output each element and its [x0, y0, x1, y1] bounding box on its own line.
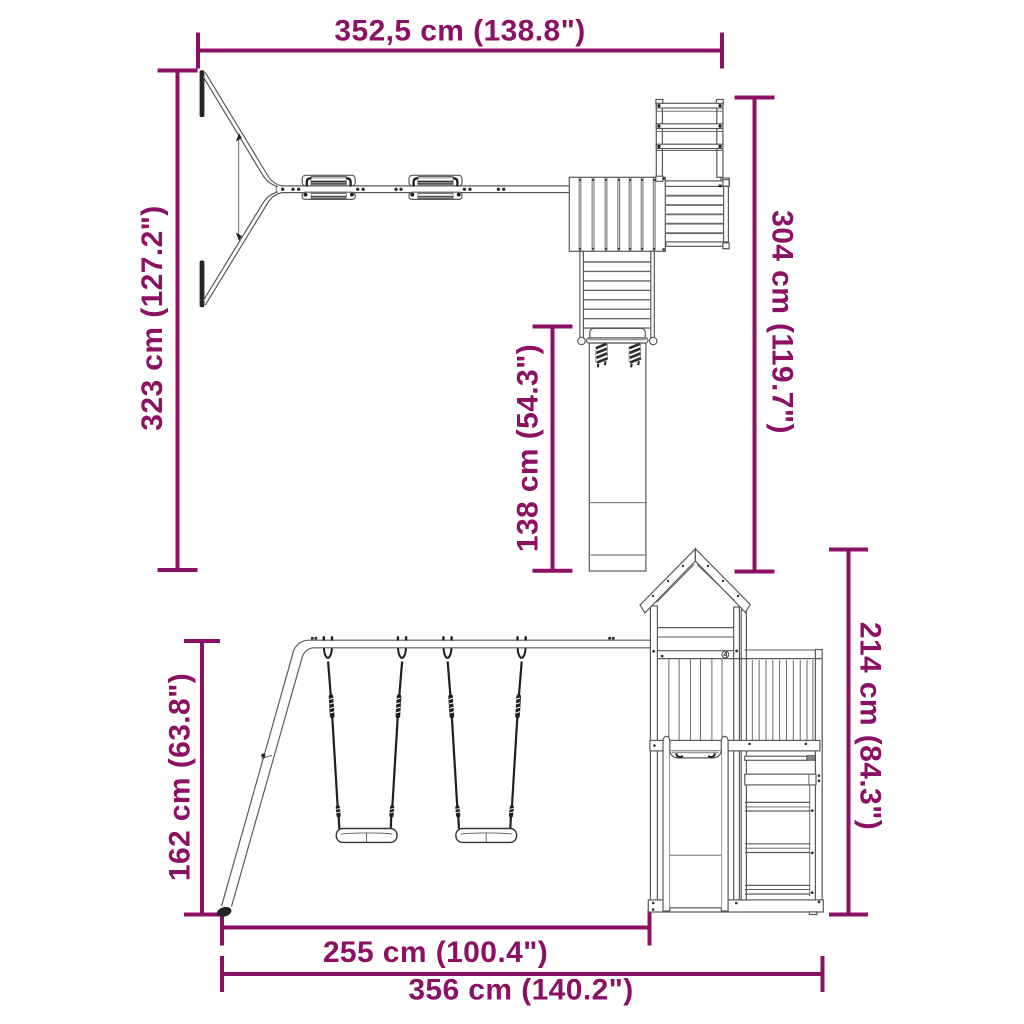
svg-text:138 cm (54.3"): 138 cm (54.3"): [512, 344, 545, 552]
svg-text:352,5 cm (138.8"): 352,5 cm (138.8"): [334, 15, 585, 48]
svg-text:255 cm (100.4"): 255 cm (100.4"): [323, 936, 548, 969]
svg-text:162 cm (63.8"): 162 cm (63.8"): [164, 673, 197, 881]
svg-text:323 cm (127.2"): 323 cm (127.2"): [136, 205, 169, 430]
svg-text:356 cm (140.2"): 356 cm (140.2"): [408, 974, 633, 1007]
svg-text:304 cm (119.7"): 304 cm (119.7"): [766, 210, 799, 434]
svg-text:214 cm (84.3"): 214 cm (84.3"): [854, 622, 887, 830]
